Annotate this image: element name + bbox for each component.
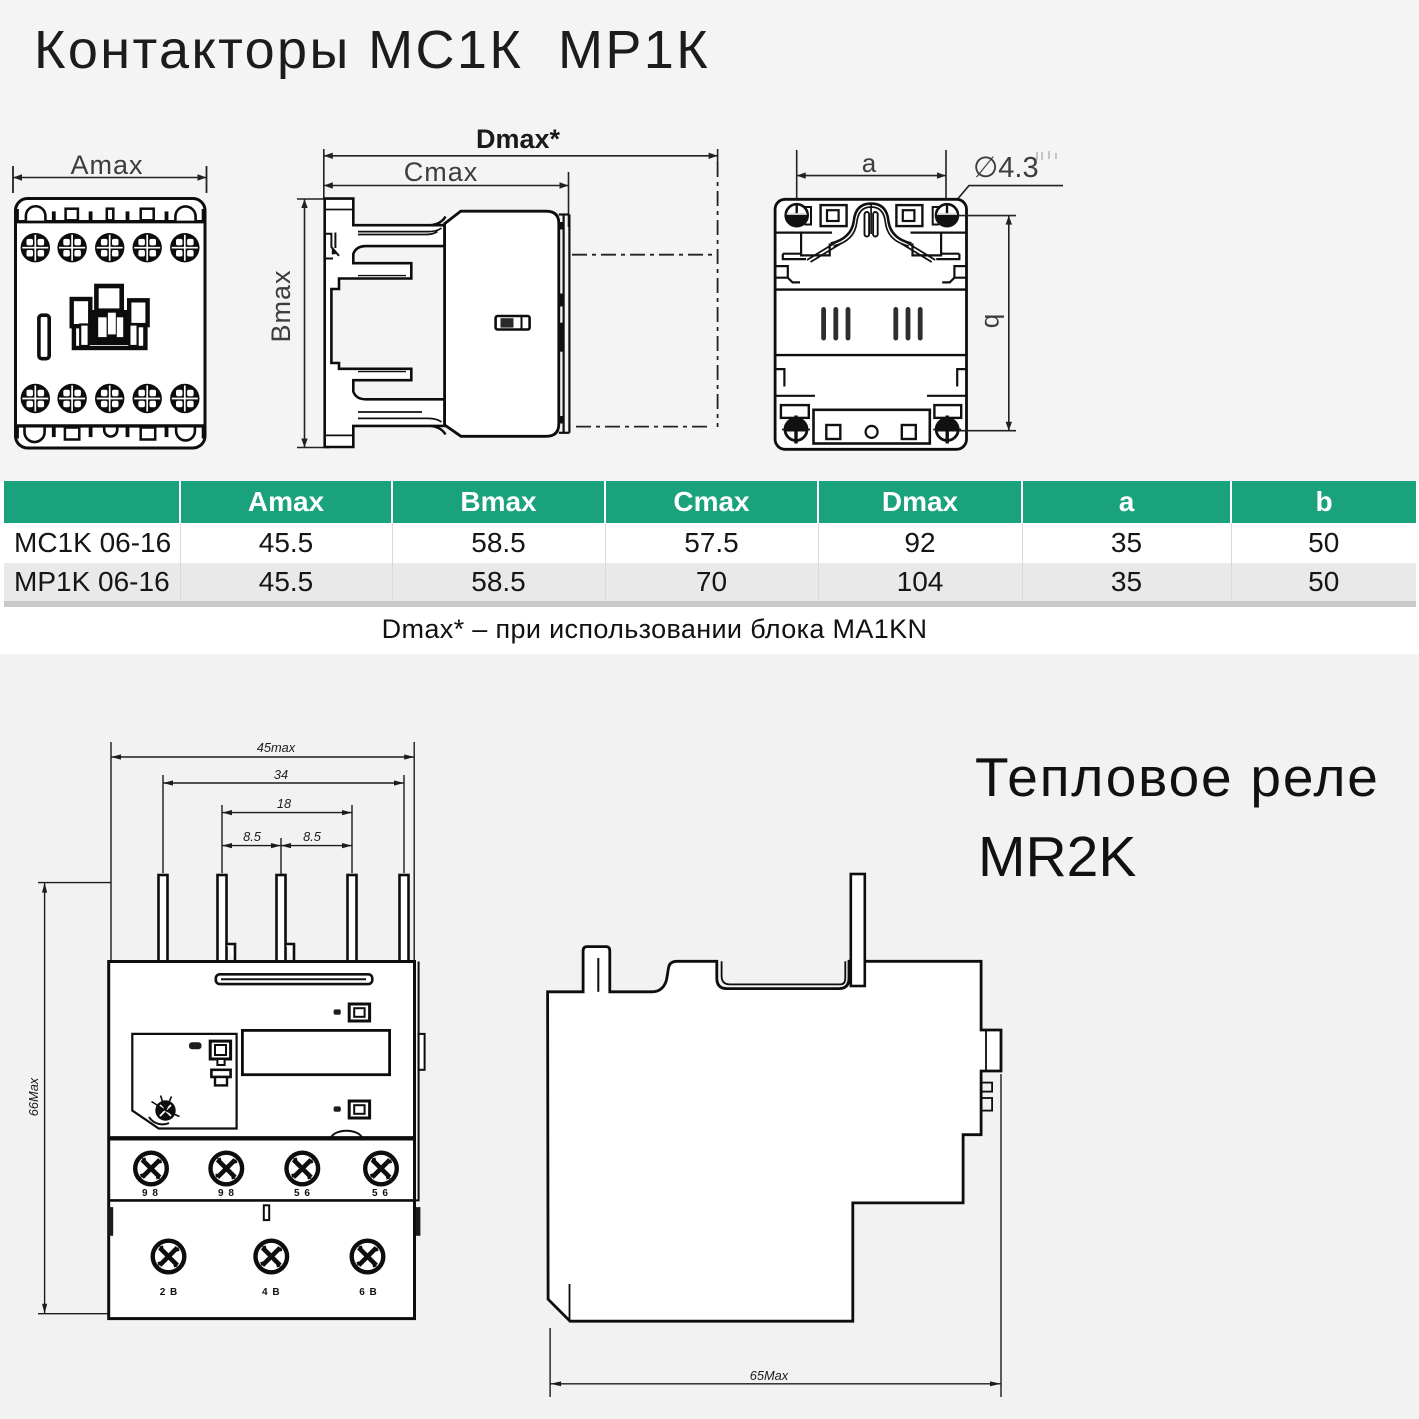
svg-text:Bmax: Bmax — [266, 269, 296, 342]
svg-text:Cmax: Cmax — [404, 157, 479, 187]
svg-text:9 8: 9 8 — [218, 1188, 235, 1199]
svg-text:8.5: 8.5 — [303, 829, 322, 844]
svg-text:Amax: Amax — [70, 150, 143, 180]
svg-text:6 B: 6 B — [359, 1287, 378, 1298]
svg-text:a: a — [862, 148, 877, 178]
svg-text:∅4.3: ∅4.3 — [973, 152, 1039, 184]
svg-text:5 6: 5 6 — [294, 1188, 311, 1199]
svg-text:4 B: 4 B — [262, 1287, 281, 1298]
svg-text:9 8: 9 8 — [142, 1188, 159, 1199]
svg-text:45max: 45max — [257, 740, 296, 755]
svg-text:65Max: 65Max — [750, 1368, 789, 1383]
svg-text:2 B: 2 B — [160, 1287, 179, 1298]
svg-text:8.5: 8.5 — [243, 829, 262, 844]
svg-text:66Max: 66Max — [26, 1077, 41, 1116]
svg-text:Dmax*: Dmax* — [476, 124, 561, 154]
svg-text:b: b — [979, 314, 1009, 328]
svg-text:34: 34 — [274, 767, 288, 782]
svg-text:18: 18 — [277, 796, 292, 811]
svg-text:5 6: 5 6 — [372, 1188, 389, 1199]
